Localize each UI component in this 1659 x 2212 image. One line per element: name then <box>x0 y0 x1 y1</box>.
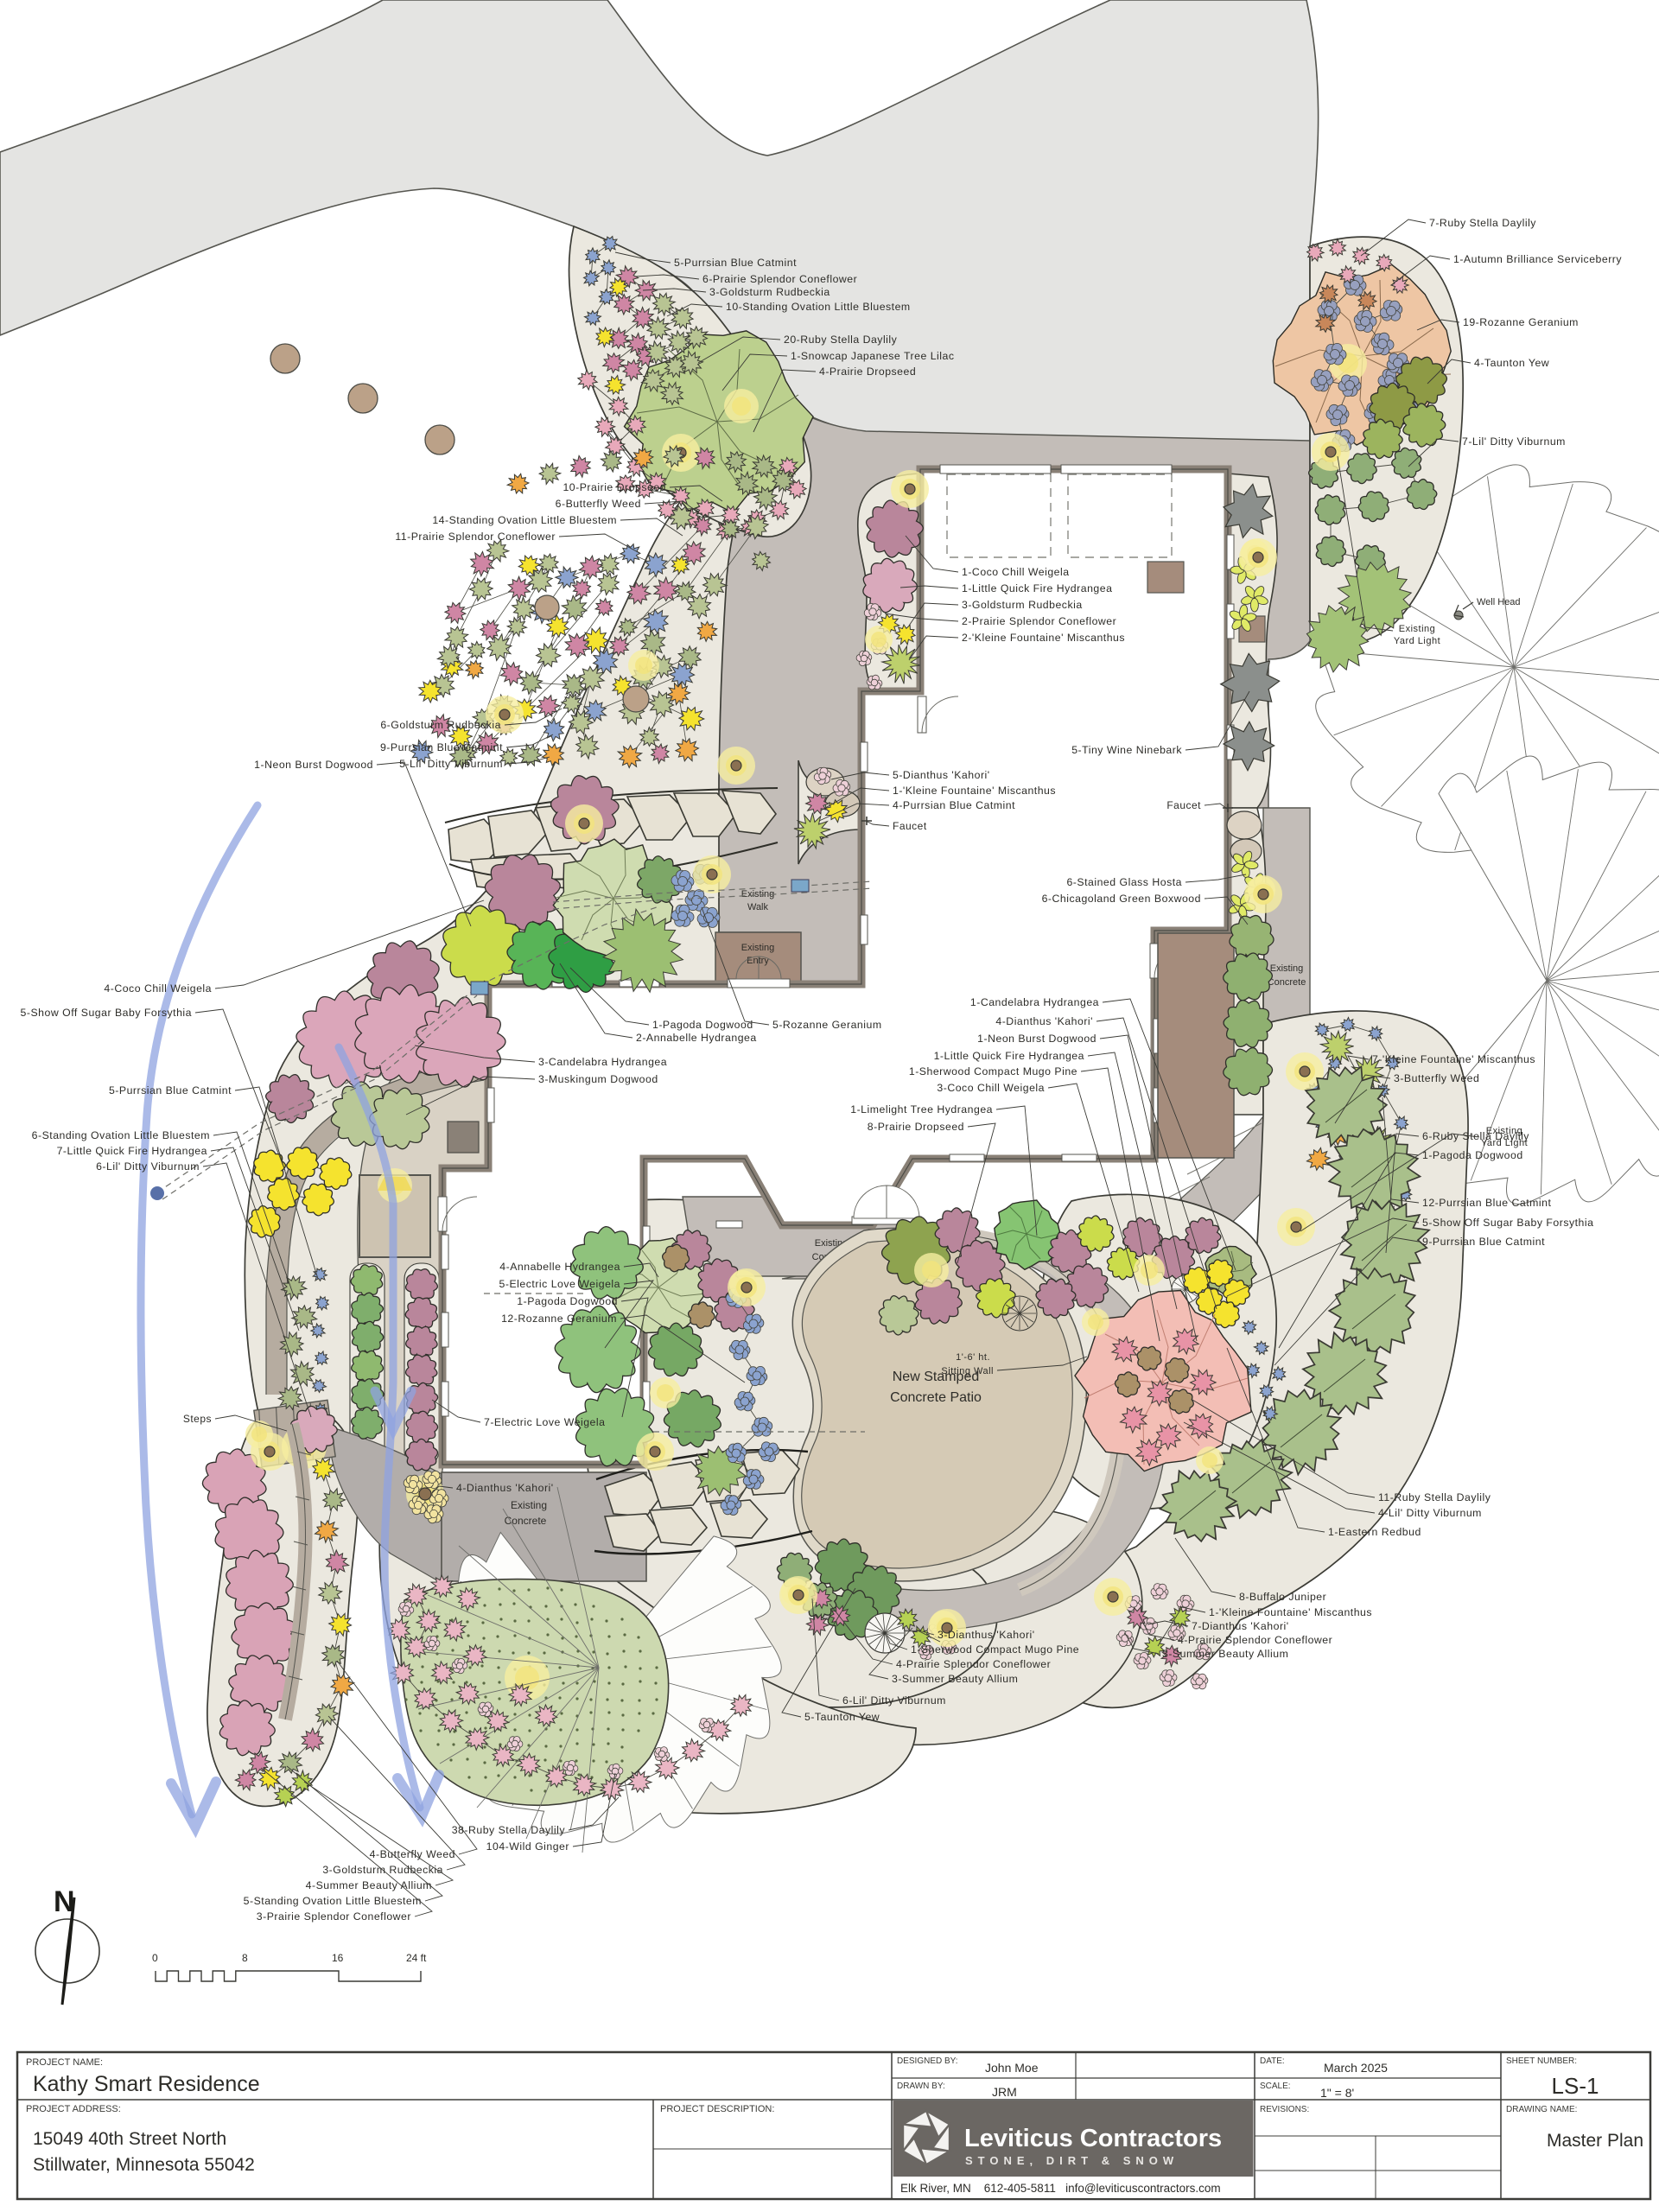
svg-text:1" = 8': 1" = 8' <box>1320 2086 1354 2100</box>
svg-text:4-Summer Beauty Allium: 4-Summer Beauty Allium <box>306 1879 432 1891</box>
svg-text:DESIGNED BY:: DESIGNED BY: <box>897 2056 958 2066</box>
svg-text:March 2025: March 2025 <box>1324 2061 1388 2075</box>
svg-text:8-Buffalo Juniper: 8-Buffalo Juniper <box>1239 1591 1326 1603</box>
svg-text:1-'Kleine Fountaine' Miscanthu: 1-'Kleine Fountaine' Miscanthus <box>893 785 1056 797</box>
svg-text:4-Dianthus 'Kahori': 4-Dianthus 'Kahori' <box>995 1015 1093 1027</box>
svg-text:Existing: Existing <box>511 1499 547 1511</box>
svg-text:3-Butterfly Weed: 3-Butterfly Weed <box>1394 1072 1479 1084</box>
svg-text:JRM: JRM <box>992 2085 1017 2099</box>
svg-text:9-Purrsian Blue Catmint: 9-Purrsian Blue Catmint <box>1422 1236 1545 1248</box>
svg-text:6-Goldsturm Rudbeckia: 6-Goldsturm Rudbeckia <box>380 719 501 731</box>
svg-text:1-Eastern Redbud: 1-Eastern Redbud <box>1328 1526 1421 1538</box>
svg-text:5-Show Off Sugar Baby Forsythi: 5-Show Off Sugar Baby Forsythia <box>21 1007 192 1019</box>
svg-text:5-Lil' Ditty Viburnum: 5-Lil' Ditty Viburnum <box>399 758 503 770</box>
svg-text:4-Taunton Yew: 4-Taunton Yew <box>1474 357 1549 369</box>
svg-text:Existing: Existing <box>1486 1126 1523 1136</box>
svg-text:PROJECT ADDRESS:: PROJECT ADDRESS: <box>26 2104 121 2114</box>
svg-text:2-Annabelle Hydrangea: 2-Annabelle Hydrangea <box>636 1032 757 1044</box>
svg-text:LS-1: LS-1 <box>1552 2073 1599 2099</box>
svg-text:SHEET NUMBER:: SHEET NUMBER: <box>1506 2056 1577 2066</box>
svg-text:Faucet: Faucet <box>1166 799 1201 811</box>
svg-text:Elk River, MN 612-405-5811: Elk River, MN 612-405-5811 info@leviticu… <box>900 2182 1221 2195</box>
svg-text:1-Little Quick Fire Hydrangea: 1-Little Quick Fire Hydrangea <box>934 1050 1084 1062</box>
svg-text:10-Prairie Dropseed: 10-Prairie Dropseed <box>563 481 666 493</box>
svg-text:1-Sherwood Compact Mugo Pine: 1-Sherwood Compact Mugo Pine <box>911 1643 1079 1656</box>
svg-text:Existing: Existing <box>1270 963 1304 974</box>
svg-text:Concrete Patio: Concrete Patio <box>890 1390 982 1405</box>
svg-text:6-Lil' Ditty Viburnum: 6-Lil' Ditty Viburnum <box>96 1160 200 1173</box>
svg-text:REVISIONS:: REVISIONS: <box>1260 2105 1309 2114</box>
svg-text:7-'Kleine Fountaine' Miscanthu: 7-'Kleine Fountaine' Miscanthus <box>1372 1053 1535 1065</box>
svg-text:DATE:: DATE: <box>1260 2056 1285 2066</box>
svg-text:5-Show Off Sugar Baby Forsythi: 5-Show Off Sugar Baby Forsythia <box>1422 1217 1593 1229</box>
svg-text:3-Dianthus 'Kahori': 3-Dianthus 'Kahori' <box>938 1629 1035 1641</box>
svg-text:3-Coco Chill Weigela: 3-Coco Chill Weigela <box>937 1082 1045 1094</box>
svg-text:Existing: Existing <box>741 943 775 953</box>
svg-text:5-Dianthus 'Kahori': 5-Dianthus 'Kahori' <box>893 769 990 781</box>
svg-text:Kathy Smart Residence: Kathy Smart Residence <box>33 2072 260 2096</box>
svg-text:PROJECT DESCRIPTION:: PROJECT DESCRIPTION: <box>660 2104 774 2114</box>
svg-text:STONE, DIRT & SNOW: STONE, DIRT & SNOW <box>965 2154 1179 2167</box>
svg-text:14-Standing Ovation Little Blu: 14-Standing Ovation Little Bluestem <box>432 514 617 526</box>
svg-text:1-Candelabra Hydrangea: 1-Candelabra Hydrangea <box>970 996 1099 1008</box>
svg-text:20-Ruby Stella Daylily: 20-Ruby Stella Daylily <box>784 334 898 346</box>
svg-text:11-Prairie Splendor Coneflower: 11-Prairie Splendor Coneflower <box>395 531 556 543</box>
svg-text:7-Lil' Ditty Viburnum: 7-Lil' Ditty Viburnum <box>1462 435 1566 448</box>
svg-text:6-Stained Glass Hosta: 6-Stained Glass Hosta <box>1066 876 1182 888</box>
svg-text:1-Sherwood Compact Mugo Pine: 1-Sherwood Compact Mugo Pine <box>909 1065 1077 1077</box>
svg-text:DRAWING NAME:: DRAWING NAME: <box>1506 2105 1577 2114</box>
svg-text:16: 16 <box>332 1952 344 1964</box>
svg-text:2-Prairie Splendor Coneflower: 2-Prairie Splendor Coneflower <box>962 615 1116 627</box>
svg-text:5-Taunton Yew: 5-Taunton Yew <box>804 1711 880 1723</box>
svg-text:PROJECT NAME:: PROJECT NAME: <box>26 2057 103 2068</box>
svg-text:1-Pagoda Dogwood: 1-Pagoda Dogwood <box>517 1295 618 1307</box>
svg-text:7-Dianthus 'Kahori': 7-Dianthus 'Kahori' <box>1192 1620 1289 1632</box>
svg-text:3-Muskingum Dogwood: 3-Muskingum Dogwood <box>538 1073 658 1085</box>
svg-text:12-Rozanne Geranium: 12-Rozanne Geranium <box>501 1313 617 1325</box>
svg-text:1-Limelight Tree Hydrangea: 1-Limelight Tree Hydrangea <box>850 1103 993 1116</box>
svg-text:1-Coco Chill Weigela: 1-Coco Chill Weigela <box>962 566 1070 578</box>
svg-text:N: N <box>54 1885 75 1918</box>
svg-text:7-Ruby Stella Daylily: 7-Ruby Stella Daylily <box>1429 217 1536 229</box>
svg-text:Concrete: Concrete <box>505 1515 547 1527</box>
svg-text:Walk: Walk <box>747 902 769 912</box>
svg-text:38-Ruby Stella Daylily: 38-Ruby Stella Daylily <box>452 1824 566 1836</box>
svg-text:Yard Light: Yard Light <box>1394 636 1440 646</box>
svg-text:Sitting Wall: Sitting Wall <box>941 1366 994 1376</box>
svg-text:4-Prairie Splendor Coneflower: 4-Prairie Splendor Coneflower <box>896 1658 1051 1670</box>
svg-text:5-Electric Love Weigela: 5-Electric Love Weigela <box>499 1278 620 1290</box>
svg-text:9-Purrsian Blue Catmint: 9-Purrsian Blue Catmint <box>380 741 503 753</box>
svg-text:8-Prairie Dropseed: 8-Prairie Dropseed <box>868 1121 964 1133</box>
svg-text:6-Butterfly Weed: 6-Butterfly Weed <box>556 498 641 510</box>
svg-text:4-Butterfly Weed: 4-Butterfly Weed <box>370 1848 455 1860</box>
svg-text:SCALE:: SCALE: <box>1260 2082 1291 2091</box>
svg-text:8: 8 <box>242 1952 248 1964</box>
svg-text:John Moe: John Moe <box>985 2061 1039 2075</box>
svg-text:1-Little Quick Fire Hydrangea: 1-Little Quick Fire Hydrangea <box>962 582 1112 594</box>
svg-text:1-Neon Burst Dogwood: 1-Neon Burst Dogwood <box>254 759 373 771</box>
svg-text:4-Purrsian Blue Catmint: 4-Purrsian Blue Catmint <box>893 799 1015 811</box>
svg-text:4-Prairie Splendor Coneflower: 4-Prairie Splendor Coneflower <box>1178 1634 1332 1646</box>
svg-text:5-Purrsian Blue Catmint: 5-Purrsian Blue Catmint <box>109 1084 232 1096</box>
svg-text:Master Plan: Master Plan <box>1547 2131 1643 2151</box>
svg-text:6-Prairie Splendor Coneflower: 6-Prairie Splendor Coneflower <box>702 273 857 285</box>
svg-text:Steps: Steps <box>183 1413 212 1425</box>
svg-text:0: 0 <box>152 1952 158 1964</box>
svg-text:Stillwater, Minnesota 55042: Stillwater, Minnesota 55042 <box>33 2155 255 2175</box>
svg-text:7-Little Quick Fire Hydrangea: 7-Little Quick Fire Hydrangea <box>57 1145 207 1157</box>
svg-text:11-Ruby Stella Daylily: 11-Ruby Stella Daylily <box>1378 1491 1491 1503</box>
svg-text:Leviticus Contractors: Leviticus Contractors <box>964 2125 1222 2152</box>
svg-text:4-Annabelle Hydrangea: 4-Annabelle Hydrangea <box>499 1261 620 1273</box>
svg-text:19-Rozanne Geranium: 19-Rozanne Geranium <box>1463 316 1579 328</box>
svg-text:4-Prairie Dropseed: 4-Prairie Dropseed <box>819 365 916 378</box>
svg-text:Existing: Existing <box>1399 624 1436 634</box>
svg-text:5-Purrsian Blue Catmint: 5-Purrsian Blue Catmint <box>674 257 797 269</box>
svg-text:3-Goldsturm Rudbeckia: 3-Goldsturm Rudbeckia <box>962 599 1083 611</box>
svg-text:3-Prairie Splendor Coneflower: 3-Prairie Splendor Coneflower <box>257 1910 411 1923</box>
svg-text:1'-6' ht.: 1'-6' ht. <box>956 1352 990 1363</box>
svg-text:12-Purrsian Blue Catmint: 12-Purrsian Blue Catmint <box>1422 1197 1551 1209</box>
svg-text:1-Snowcap Japanese Tree Lilac: 1-Snowcap Japanese Tree Lilac <box>791 350 955 362</box>
svg-text:6-Chicagoland Green Boxwood: 6-Chicagoland Green Boxwood <box>1042 893 1201 905</box>
svg-text:1-Pagoda Dogwood: 1-Pagoda Dogwood <box>1422 1149 1523 1161</box>
svg-text:Faucet: Faucet <box>893 820 927 832</box>
svg-text:Yard Light: Yard Light <box>1481 1138 1528 1148</box>
svg-text:Existing: Existing <box>741 889 775 899</box>
svg-text:3-Summer Beauty Allium: 3-Summer Beauty Allium <box>892 1673 1018 1685</box>
svg-text:Well Head: Well Head <box>1477 597 1521 607</box>
svg-text:1-'Kleine Fountaine' Miscanthu: 1-'Kleine Fountaine' Miscanthus <box>1209 1606 1372 1618</box>
svg-text:104-Wild Ginger: 104-Wild Ginger <box>486 1840 569 1853</box>
svg-text:5-Rozanne Geranium: 5-Rozanne Geranium <box>772 1019 882 1031</box>
svg-text:6-Standing Ovation Little Blue: 6-Standing Ovation Little Bluestem <box>32 1129 210 1141</box>
svg-text:6-Lil' Ditty Viburnum: 6-Lil' Ditty Viburnum <box>842 1694 946 1707</box>
svg-text:15049 40th Street North: 15049 40th Street North <box>33 2129 226 2149</box>
svg-text:4-Coco Chill Weigela: 4-Coco Chill Weigela <box>104 982 212 995</box>
svg-text:3-Goldsturm Rudbeckia: 3-Goldsturm Rudbeckia <box>709 286 830 298</box>
svg-text:1-Neon Burst Dogwood: 1-Neon Burst Dogwood <box>977 1033 1096 1045</box>
svg-text:7-Electric Love Weigela: 7-Electric Love Weigela <box>484 1416 605 1428</box>
svg-text:3-Candelabra Hydrangea: 3-Candelabra Hydrangea <box>538 1056 667 1068</box>
svg-text:5-Tiny Wine Ninebark: 5-Tiny Wine Ninebark <box>1071 744 1182 756</box>
svg-text:1-Pagoda Dogwood: 1-Pagoda Dogwood <box>652 1019 753 1031</box>
svg-text:2-'Kleine Fountaine' Miscanthu: 2-'Kleine Fountaine' Miscanthus <box>962 632 1125 644</box>
svg-text:Concrete: Concrete <box>1268 977 1306 988</box>
svg-text:3-Summer Beauty Allium: 3-Summer Beauty Allium <box>1162 1648 1288 1660</box>
svg-text:5-Standing Ovation Little Blue: 5-Standing Ovation Little Bluestem <box>244 1895 422 1907</box>
svg-text:DRAWN BY:: DRAWN BY: <box>897 2082 945 2091</box>
svg-text:4-Lil' Ditty Viburnum: 4-Lil' Ditty Viburnum <box>1378 1507 1482 1519</box>
svg-text:1-Autumn Brilliance Serviceber: 1-Autumn Brilliance Serviceberry <box>1453 253 1622 265</box>
svg-text:4-Dianthus 'Kahori': 4-Dianthus 'Kahori' <box>456 1482 554 1494</box>
svg-text:10-Standing Ovation Little Blu: 10-Standing Ovation Little Bluestem <box>726 301 911 313</box>
svg-text:24 ft: 24 ft <box>406 1952 427 1964</box>
